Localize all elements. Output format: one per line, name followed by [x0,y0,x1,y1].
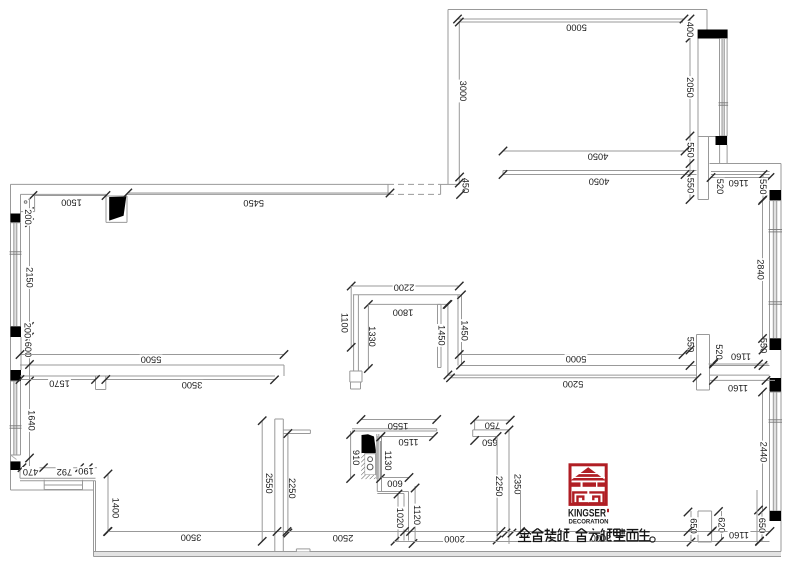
svg-text:1100: 1100 [340,313,350,333]
svg-text:1640: 1640 [26,410,36,431]
svg-text:1150: 1150 [399,437,419,447]
svg-text:4050: 4050 [588,152,609,162]
svg-text:910: 910 [351,450,361,466]
svg-text:5450: 5450 [243,198,264,208]
svg-text:5500: 5500 [141,355,162,365]
svg-text:2250: 2250 [287,478,297,499]
svg-text:1570: 1570 [49,379,70,389]
svg-text:470: 470 [23,467,39,477]
svg-text:550: 550 [758,179,768,195]
svg-text:200: 200 [23,209,33,225]
svg-text:1160: 1160 [729,530,749,540]
svg-text:5200: 5200 [563,379,584,389]
svg-text:1400: 1400 [111,498,121,519]
svg-text:600: 600 [387,479,403,489]
svg-text:1800: 1800 [393,308,414,318]
svg-text:520: 520 [715,179,725,195]
svg-text:2350: 2350 [513,474,523,495]
svg-text:3000: 3000 [591,533,612,543]
svg-text:3500: 3500 [182,380,203,390]
svg-text:2250: 2250 [494,476,504,497]
svg-text:650: 650 [482,437,498,447]
svg-text:450: 450 [461,178,471,194]
svg-text:1160: 1160 [731,352,751,362]
svg-text:620: 620 [717,517,727,533]
svg-text:2000: 2000 [444,534,465,544]
svg-text:2840: 2840 [756,259,766,280]
svg-text:1160: 1160 [729,178,749,188]
svg-text:200: 200 [22,323,32,339]
svg-text:3500: 3500 [181,533,202,543]
svg-text:2440: 2440 [759,442,769,463]
svg-text:1160: 1160 [728,383,748,393]
svg-text:3000: 3000 [458,81,468,102]
svg-text:190: 190 [78,466,94,476]
svg-text:520: 520 [714,344,724,360]
svg-text:792: 792 [57,467,73,477]
svg-text:2500: 2500 [333,533,354,543]
svg-text:1130: 1130 [383,451,393,471]
svg-text:1120: 1120 [412,505,422,525]
svg-text:1020: 1020 [395,508,405,529]
svg-text:550: 550 [686,178,696,194]
svg-text:5000: 5000 [566,354,587,364]
svg-text:5000: 5000 [566,23,587,33]
svg-text:2050: 2050 [685,77,695,98]
svg-text:1450: 1450 [437,325,447,346]
svg-text:400: 400 [685,22,695,38]
svg-text:DECORATION: DECORATION [569,518,609,525]
svg-text:650: 650 [757,518,767,534]
svg-text:2150: 2150 [25,267,35,288]
svg-text:1500: 1500 [61,198,82,208]
svg-text:1330: 1330 [367,326,377,347]
svg-text:2550: 2550 [264,473,274,494]
svg-text:4050: 4050 [589,177,610,187]
svg-text:2200: 2200 [394,283,415,293]
svg-text:1550: 1550 [388,421,409,431]
svg-text:1450: 1450 [459,320,469,341]
svg-text:550: 550 [686,142,696,158]
svg-text:750: 750 [485,421,501,431]
